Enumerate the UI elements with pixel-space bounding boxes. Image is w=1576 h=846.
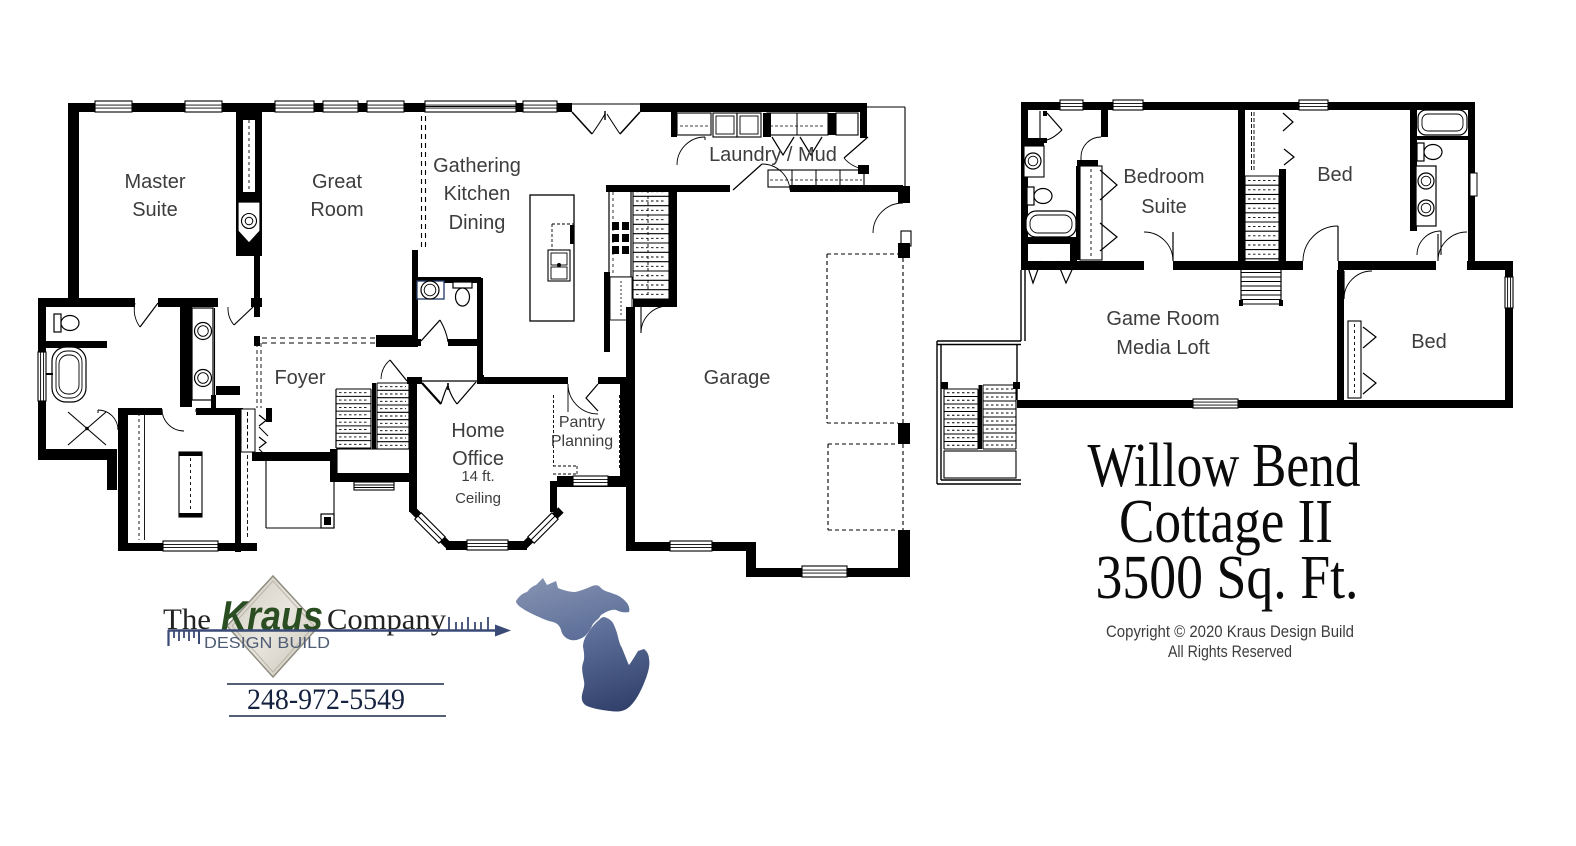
svg-text:Room: Room — [310, 199, 363, 221]
svg-text:Great: Great — [312, 171, 362, 193]
svg-text:Copyright © 2020 Kraus Design: Copyright © 2020 Kraus Design Build — [1106, 622, 1354, 641]
svg-text:Suite: Suite — [132, 199, 178, 221]
svg-text:Bedroom: Bedroom — [1123, 166, 1204, 188]
svg-text:Pantry: Pantry — [559, 414, 605, 431]
svg-text:Dining: Dining — [449, 212, 506, 234]
svg-text:Kraus: Kraus — [221, 592, 323, 639]
svg-text:Bed: Bed — [1411, 331, 1447, 353]
svg-text:DESIGN BUILD: DESIGN BUILD — [204, 635, 330, 652]
svg-text:Laundry / Mud: Laundry / Mud — [709, 144, 837, 166]
svg-text:Home: Home — [451, 420, 504, 442]
svg-text:Suite: Suite — [1141, 196, 1187, 218]
svg-text:Kitchen: Kitchen — [444, 183, 511, 205]
svg-text:14 ft.: 14 ft. — [461, 468, 494, 485]
svg-text:Bed: Bed — [1317, 164, 1353, 186]
svg-text:Garage: Garage — [704, 367, 771, 389]
svg-text:Foyer: Foyer — [274, 367, 325, 389]
svg-text:Media Loft: Media Loft — [1116, 337, 1210, 359]
svg-text:Planning: Planning — [551, 433, 613, 450]
svg-text:Ceiling: Ceiling — [455, 490, 501, 507]
svg-text:3500 Sq. Ft.: 3500 Sq. Ft. — [1096, 544, 1359, 612]
svg-text:All Rights Reserved: All Rights Reserved — [1168, 642, 1292, 661]
svg-text:Gathering: Gathering — [433, 155, 521, 177]
svg-text:248-972-5549: 248-972-5549 — [247, 683, 405, 716]
svg-text:Master: Master — [124, 171, 185, 193]
svg-text:Office: Office — [452, 448, 504, 470]
svg-text:Game Room: Game Room — [1106, 308, 1219, 330]
